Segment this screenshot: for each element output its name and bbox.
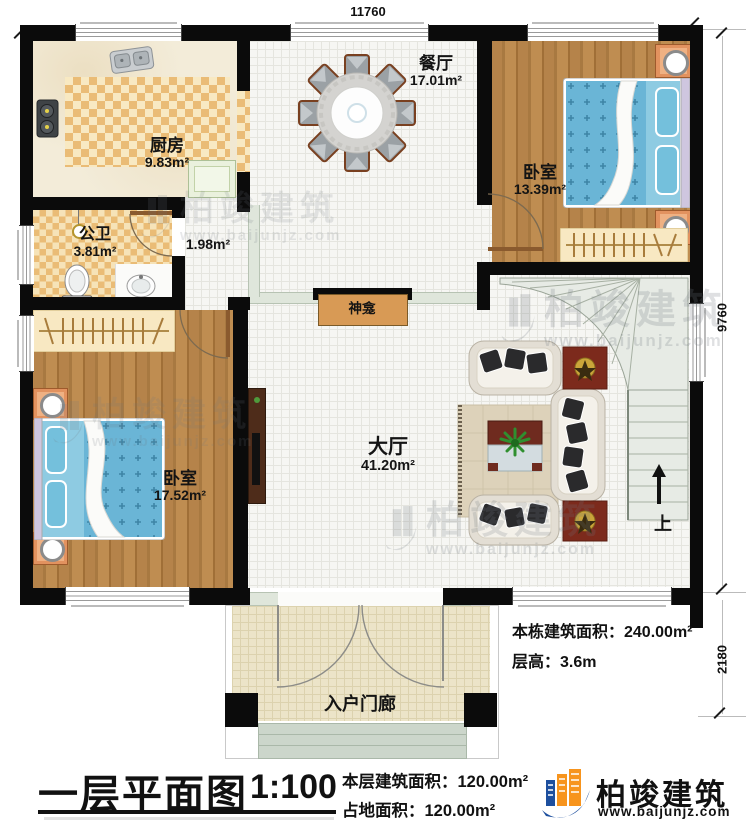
beam-hall-dining [248, 205, 260, 297]
nightstand [33, 388, 68, 420]
tv [252, 433, 260, 485]
dim-top: 11760 [336, 4, 400, 19]
room-label-living: 大厅41.20m² [338, 436, 438, 475]
dim-right-upper: 9760 [715, 296, 730, 340]
side-table [563, 347, 607, 389]
stat-floor-area: 本层建筑面积：120.00m² [342, 768, 528, 792]
porch-label: 入户门廊 [310, 694, 410, 714]
room-label-dining: 餐厅17.01m² [386, 54, 486, 89]
sofa-two-seat [469, 341, 561, 395]
porch-steps [258, 723, 467, 759]
wardrobe [33, 310, 175, 352]
shrine-label: 神龛 [318, 301, 406, 316]
room-label-hallway: 1.98m² [168, 237, 248, 253]
beam-porch-left [250, 592, 278, 606]
title-underline [38, 810, 336, 814]
stove-icon [36, 98, 60, 140]
brand-logo-icon [540, 766, 592, 828]
washbasin-icon [124, 272, 158, 300]
room-label-kitchen: 厨房9.83m² [117, 136, 217, 171]
scale-label: 1:100 [250, 768, 337, 807]
nightstand [655, 44, 692, 78]
porch-column-left [225, 693, 258, 727]
headboard [34, 418, 42, 540]
kitchen-pass-counter [237, 91, 250, 172]
tv-cabinet [248, 388, 266, 504]
wardrobe [560, 228, 688, 262]
room-label-bathroom: 公卫3.81m² [45, 226, 145, 259]
pillow [656, 146, 678, 194]
entry-door-opening [278, 592, 443, 606]
sofa-two-seat [469, 495, 559, 545]
sofa-three-seat [551, 389, 605, 501]
pillow [656, 88, 678, 136]
porch-column-right [464, 693, 497, 727]
pillow [46, 481, 66, 527]
window [75, 24, 182, 41]
side-table [563, 501, 607, 541]
room-label-bedroom-right: 卧室13.39m² [490, 163, 590, 198]
sofa-set [455, 335, 615, 547]
coffee-table [488, 421, 542, 471]
room-label-bedroom-left: 卧室17.52m² [130, 469, 230, 504]
window [527, 24, 659, 41]
window [689, 303, 704, 382]
headboard [681, 78, 690, 208]
window [65, 587, 190, 605]
stat-total-area: 本栋建筑面积：240.00m² [512, 618, 693, 642]
window [19, 315, 34, 372]
window [290, 24, 429, 41]
floor-plan-canvas: 11760 9760 2180 厨房9.83m² 餐厅17.01m² 卧室13.… [0, 0, 750, 840]
stat-floor-height: 层高：3.6m [512, 648, 596, 672]
brand-url: www.baijunjz.com [598, 804, 731, 819]
pillow [46, 427, 66, 473]
stat-land-area: 占地面积：120.00m² [342, 797, 495, 821]
stairs-up-label: 上 [648, 514, 678, 534]
window [19, 225, 34, 285]
dim-right-lower: 2180 [715, 638, 730, 682]
window [512, 587, 672, 605]
